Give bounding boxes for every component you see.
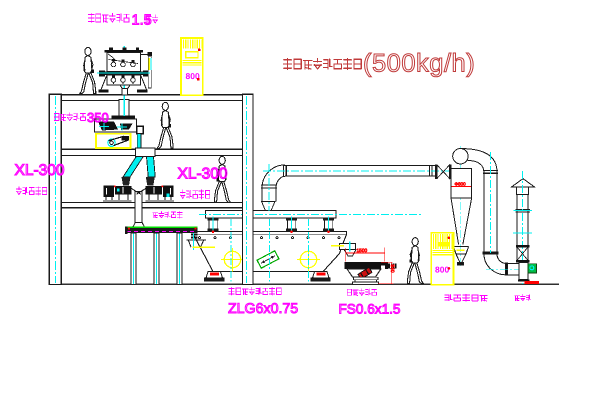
svg-text:XL-300: XL-300 — [178, 166, 228, 183]
svg-text:1500: 1500 — [357, 248, 368, 254]
svg-text:350: 350 — [87, 110, 109, 125]
svg-text:540: 540 — [389, 265, 395, 273]
svg-text:800: 800 — [435, 265, 449, 275]
svg-text:Φ800: Φ800 — [455, 181, 467, 186]
svg-text:FS0.6x1.5: FS0.6x1.5 — [339, 302, 401, 317]
svg-text:XL-300: XL-300 — [15, 162, 65, 179]
svg-text:ZLG6x0.75: ZLG6x0.75 — [228, 301, 298, 317]
svg-text:(500kg/h): (500kg/h) — [363, 50, 475, 78]
